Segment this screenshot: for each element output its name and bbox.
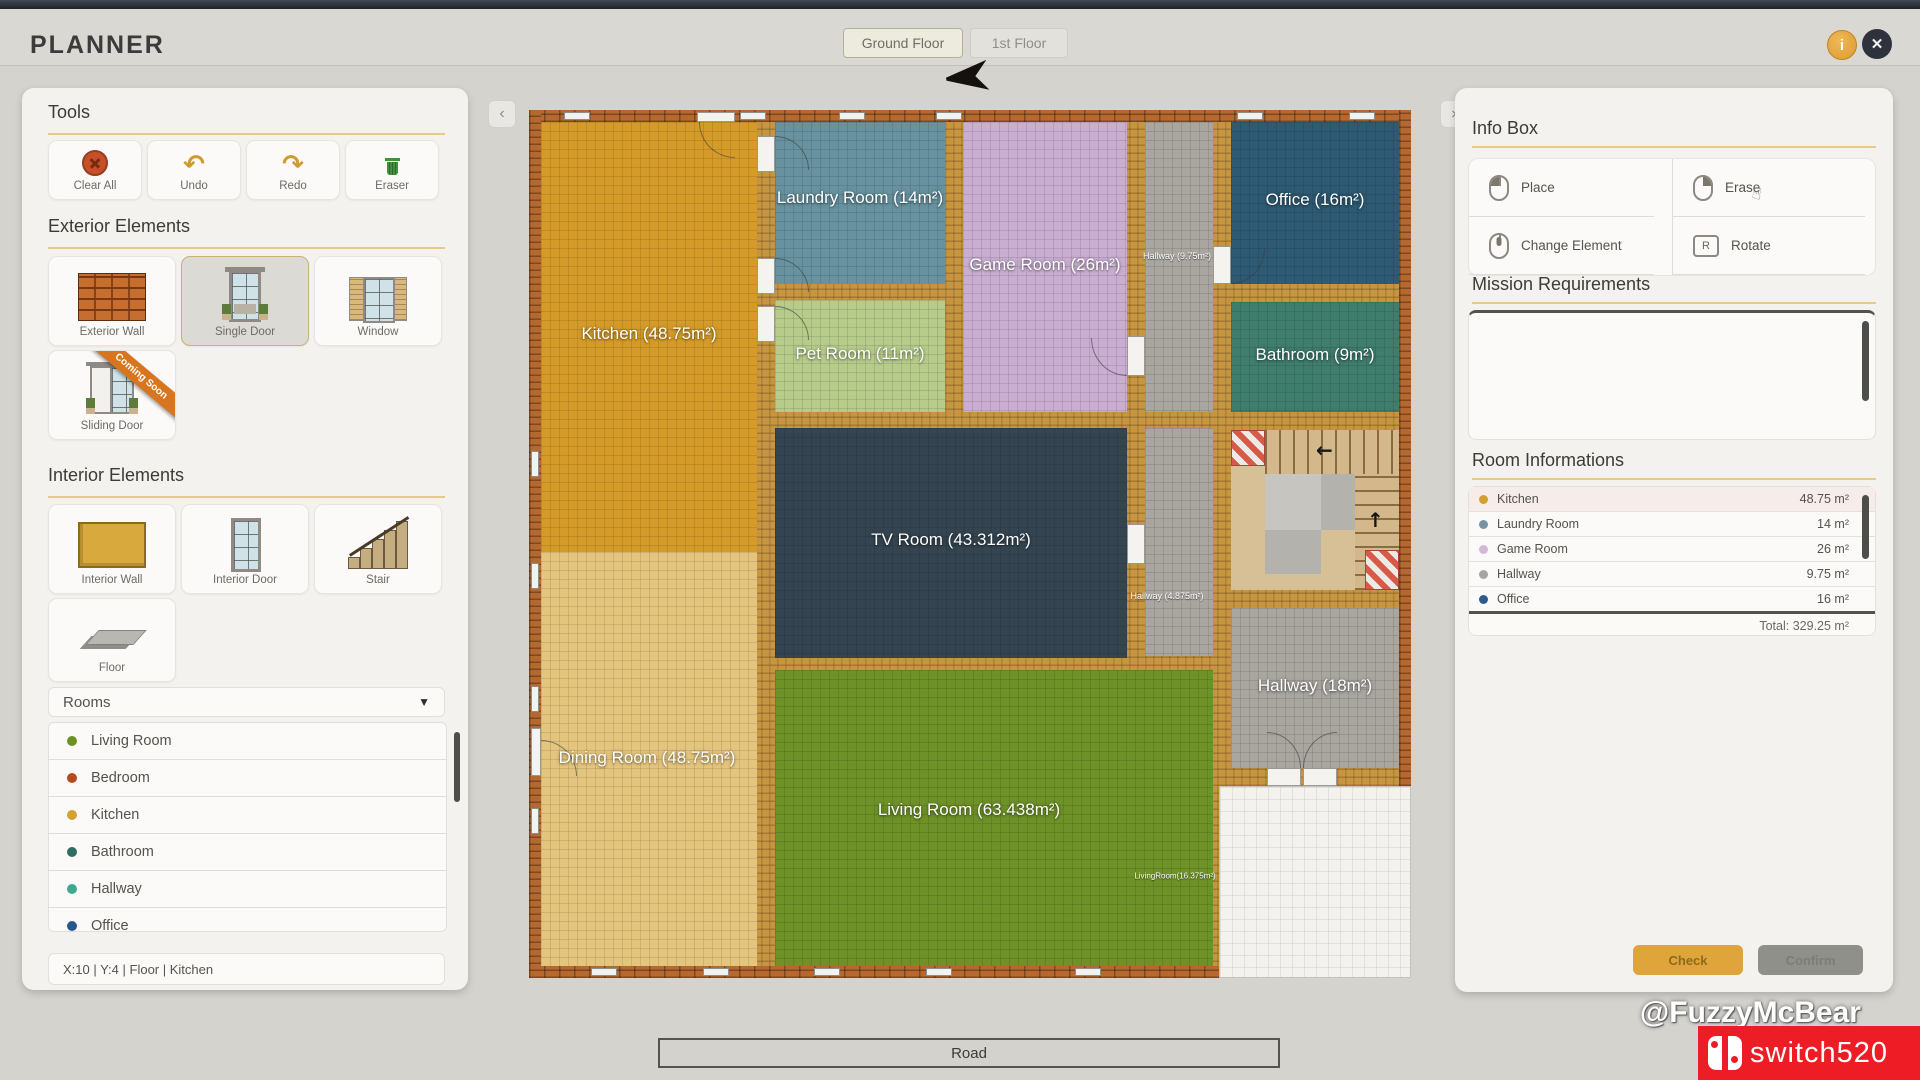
terrace-area[interactable] <box>1219 786 1411 978</box>
room-color-dot <box>1479 520 1488 529</box>
room-label-tv: TV Room (43.312m²) <box>871 530 1031 550</box>
room-option-label: Office <box>91 918 129 932</box>
room-option-label: Hallway <box>91 881 142 897</box>
room-label-pet: Pet Room (11m²) <box>795 344 924 364</box>
hint-place: Place <box>1469 159 1654 217</box>
button-label: Redo <box>279 180 307 192</box>
window <box>1237 112 1263 120</box>
tools-section-title: Tools <box>48 102 90 123</box>
chevron-down-icon: ▼ <box>418 695 430 709</box>
window <box>531 451 539 477</box>
interior-door-icon <box>228 516 262 570</box>
info-box-title: Info Box <box>1472 118 1538 139</box>
info-box-card: Place Erase Change Element R Rotate <box>1468 158 1876 276</box>
room-option-hallway[interactable]: Hallway <box>49 871 446 908</box>
element-label: Interior Wall <box>82 574 143 586</box>
cursor-status-bar: X:10 | Y:4 | Floor | Kitchen <box>48 953 445 985</box>
room-info-scrollbar[interactable] <box>1862 495 1869 559</box>
watermark-handle: @FuzzyMcBear <box>1640 996 1861 1030</box>
hint-label: Change Element <box>1521 238 1622 253</box>
window <box>839 112 865 120</box>
room-color-dot <box>1479 595 1488 604</box>
room-area: 14 m² <box>1817 517 1849 531</box>
element-label: Sliding Door <box>81 420 144 432</box>
element-label: Stair <box>366 574 390 586</box>
landing <box>1321 474 1355 530</box>
section-rule <box>1472 302 1876 304</box>
undo-button[interactable]: ↶ Undo <box>147 140 241 200</box>
stair-icon <box>346 521 410 569</box>
room-name: Office <box>1497 592 1817 606</box>
rooms-list-scrollbar[interactable] <box>454 732 460 802</box>
element-sliding-door[interactable]: Sliding Door Coming Soon <box>48 350 176 440</box>
room-label-office: Office (16m²) <box>1266 190 1365 210</box>
window <box>814 968 840 976</box>
undo-icon: ↶ <box>183 153 205 177</box>
button-label: Undo <box>180 180 208 192</box>
tab-ground-floor[interactable]: Ground Floor <box>843 28 963 58</box>
room-option-office[interactable]: Office <box>49 908 446 932</box>
room-option-label: Living Room <box>91 733 172 749</box>
room-color-dot <box>67 921 77 931</box>
exterior-section-title: Exterior Elements <box>48 216 190 237</box>
room-option-label: Bathroom <box>91 844 154 860</box>
clear-all-icon <box>82 150 108 176</box>
room-label-living-strip: LivingRoom(16.375m²) <box>1134 872 1215 881</box>
floor-plan-canvas[interactable]: ← ↑ <box>528 104 1412 984</box>
tab-1st-floor[interactable]: 1st Floor <box>970 28 1068 58</box>
room-area: 16 m² <box>1817 592 1849 606</box>
section-rule <box>48 133 445 135</box>
room-info-row: Hallway 9.75 m² <box>1469 562 1875 587</box>
room-label-game: Game Room (26m²) <box>969 255 1120 275</box>
section-rule <box>1472 146 1876 148</box>
element-label: Floor <box>99 662 125 674</box>
watermark-logo: switch520 <box>1698 1026 1920 1080</box>
room-option-kitchen[interactable]: Kitchen <box>49 797 446 834</box>
house-plan: ← ↑ <box>529 110 1411 978</box>
clear-all-button[interactable]: Clear All <box>48 140 142 200</box>
room-color-dot <box>1479 545 1488 554</box>
room-label-hallway-mid: Hallway (4.875m²) <box>1130 591 1203 601</box>
room-label-dining: Dining Room (48.75m²) <box>559 748 736 768</box>
room-label-laundry: Laundry Room (14m²) <box>777 188 943 208</box>
window <box>926 968 952 976</box>
stair-hatch <box>1365 550 1399 590</box>
hint-change-element: Change Element <box>1469 217 1654 275</box>
window <box>564 112 590 120</box>
element-window[interactable]: Window <box>314 256 442 346</box>
room-label-kitchen: Kitchen (48.75m²) <box>581 324 716 344</box>
rooms-dropdown[interactable]: Rooms ▼ <box>48 687 445 717</box>
window <box>531 808 539 834</box>
room-color-dot <box>67 773 77 783</box>
room-name: Laundry Room <box>1497 517 1817 531</box>
room-info-row: Game Room 26 m² <box>1469 537 1875 562</box>
top-dark-strip <box>0 0 1920 9</box>
room-area: 26 m² <box>1817 542 1849 556</box>
landing <box>1265 474 1321 530</box>
room-color-dot <box>1479 495 1488 504</box>
interior-section-title: Interior Elements <box>48 465 184 486</box>
door <box>1267 768 1301 786</box>
door <box>1127 336 1145 376</box>
room-color-dot <box>67 884 77 894</box>
exterior-wall-bottom <box>529 966 1219 978</box>
close-icon[interactable]: ✕ <box>1862 29 1892 59</box>
left-sidebar: Tools Clear All ↶ Undo ↷ Redo Eraser Ext… <box>22 88 468 990</box>
exterior-wall-right <box>1399 110 1411 786</box>
redo-icon: ↷ <box>282 153 304 177</box>
room-color-dot <box>67 736 77 746</box>
door <box>757 258 775 294</box>
switch-logo-icon <box>1708 1036 1722 1070</box>
page-title: PLANNER <box>30 31 165 60</box>
room-option-bathroom[interactable]: Bathroom <box>49 834 446 871</box>
info-icon[interactable]: i <box>1827 30 1857 60</box>
room-hallway-mid[interactable] <box>1145 428 1213 656</box>
door <box>1303 768 1337 786</box>
door <box>757 136 775 172</box>
stairs-area[interactable]: ← ↑ <box>1231 430 1399 590</box>
door <box>1213 246 1231 284</box>
mouse-right-click-icon <box>1693 175 1713 201</box>
section-rule <box>48 247 445 249</box>
room-area: 48.75 m² <box>1800 492 1849 506</box>
room-name: Hallway <box>1497 567 1807 581</box>
window <box>591 968 617 976</box>
button-label: Eraser <box>375 180 409 192</box>
switch-logo-icon <box>1728 1036 1742 1070</box>
mouse-left-click-icon <box>1489 175 1509 201</box>
confirm-button[interactable]: Confirm <box>1758 945 1863 975</box>
room-label-living: Living Room (63.438m²) <box>878 800 1060 820</box>
window-icon <box>347 275 409 321</box>
element-label: Exterior Wall <box>80 326 145 338</box>
element-interior-wall[interactable]: Interior Wall <box>48 504 176 594</box>
rooms-list: Living Room Bedroom Kitchen Bathroom Hal… <box>48 722 447 932</box>
room-info-row: Kitchen 48.75 m² <box>1469 487 1875 512</box>
stair-arrow-left-icon: ← <box>1316 438 1333 462</box>
room-option-living-room[interactable]: Living Room <box>49 723 446 760</box>
eraser-icon <box>385 157 400 176</box>
room-info-row: Laundry Room 14 m² <box>1469 512 1875 537</box>
button-label: Clear All <box>74 180 117 192</box>
element-stair[interactable]: Stair <box>314 504 442 594</box>
door <box>1127 524 1145 564</box>
floor-icon <box>80 628 144 654</box>
collapse-left-panel-button[interactable]: ‹ <box>488 100 516 128</box>
watermark-logo-text: switch520 <box>1750 1037 1888 1070</box>
window <box>1075 968 1101 976</box>
room-name: Kitchen <box>1497 492 1800 506</box>
element-label: Window <box>358 326 399 338</box>
exterior-wall-left <box>529 110 541 978</box>
mouse-wheel-icon <box>1489 233 1509 259</box>
room-area: 9.75 m² <box>1807 567 1849 581</box>
right-sidebar: Info Box Place Erase Change Element R Ro… <box>1455 88 1893 992</box>
hint-label: Rotate <box>1731 238 1771 253</box>
hint-erase: Erase <box>1672 159 1865 217</box>
room-color-dot <box>67 847 77 857</box>
rooms-dropdown-label: Rooms <box>63 694 111 711</box>
key-r-icon: R <box>1693 235 1719 257</box>
door <box>757 306 775 342</box>
interior-wall-icon <box>78 522 146 568</box>
stair-hatch <box>1231 430 1265 466</box>
element-label: Interior Door <box>213 574 277 586</box>
window <box>740 112 766 120</box>
element-interior-door[interactable]: Interior Door <box>181 504 309 594</box>
section-rule <box>1472 478 1876 480</box>
room-option-label: Kitchen <box>91 807 139 823</box>
mission-requirements-box <box>1468 310 1876 440</box>
exterior-wall-icon <box>78 273 146 321</box>
single-door-icon <box>221 268 269 322</box>
room-color-dot <box>67 810 77 820</box>
room-color-dot <box>1479 570 1488 579</box>
room-informations-box: Kitchen 48.75 m² Laundry Room 14 m² Game… <box>1468 486 1876 636</box>
room-option-bedroom[interactable]: Bedroom <box>49 760 446 797</box>
room-option-label: Bedroom <box>91 770 150 786</box>
eraser-button[interactable]: Eraser <box>345 140 439 200</box>
room-info-total: Total: 329.25 m² <box>1469 614 1875 633</box>
room-label-bathroom: Bathroom (9m²) <box>1255 345 1374 365</box>
element-single-door[interactable]: Single Door <box>181 256 309 346</box>
mission-scrollbar[interactable] <box>1862 321 1869 401</box>
top-bar: PLANNER Ground Floor 1st Floor i ✕ <box>0 9 1920 66</box>
room-informations-title: Room Informations <box>1472 450 1624 471</box>
section-rule <box>48 496 445 498</box>
door <box>531 728 541 776</box>
element-label: Single Door <box>215 326 275 338</box>
room-name: Game Room <box>1497 542 1817 556</box>
mission-title: Mission Requirements <box>1472 274 1650 295</box>
window <box>1349 112 1375 120</box>
room-label-hallway: Hallway (18m²) <box>1258 676 1372 696</box>
hint-rotate: R Rotate <box>1672 217 1865 275</box>
room-hallway-small[interactable] <box>1145 122 1213 412</box>
landing <box>1265 530 1321 574</box>
hint-label: Place <box>1521 180 1555 195</box>
check-button[interactable]: Check <box>1633 945 1743 975</box>
window <box>936 112 962 120</box>
window <box>703 968 729 976</box>
redo-button[interactable]: ↷ Redo <box>246 140 340 200</box>
window <box>531 563 539 589</box>
room-info-row: Office 16 m² <box>1469 587 1875 614</box>
stair-arrow-up-icon: ↑ <box>1367 508 1384 532</box>
door <box>697 112 735 122</box>
element-floor[interactable]: Floor <box>48 598 176 682</box>
room-label-hallway-small: Hallway (9.75m²) <box>1143 251 1211 261</box>
road-label: Road <box>658 1038 1280 1068</box>
window <box>531 686 539 712</box>
exterior-wall-top <box>529 110 1411 122</box>
element-exterior-wall[interactable]: Exterior Wall <box>48 256 176 346</box>
